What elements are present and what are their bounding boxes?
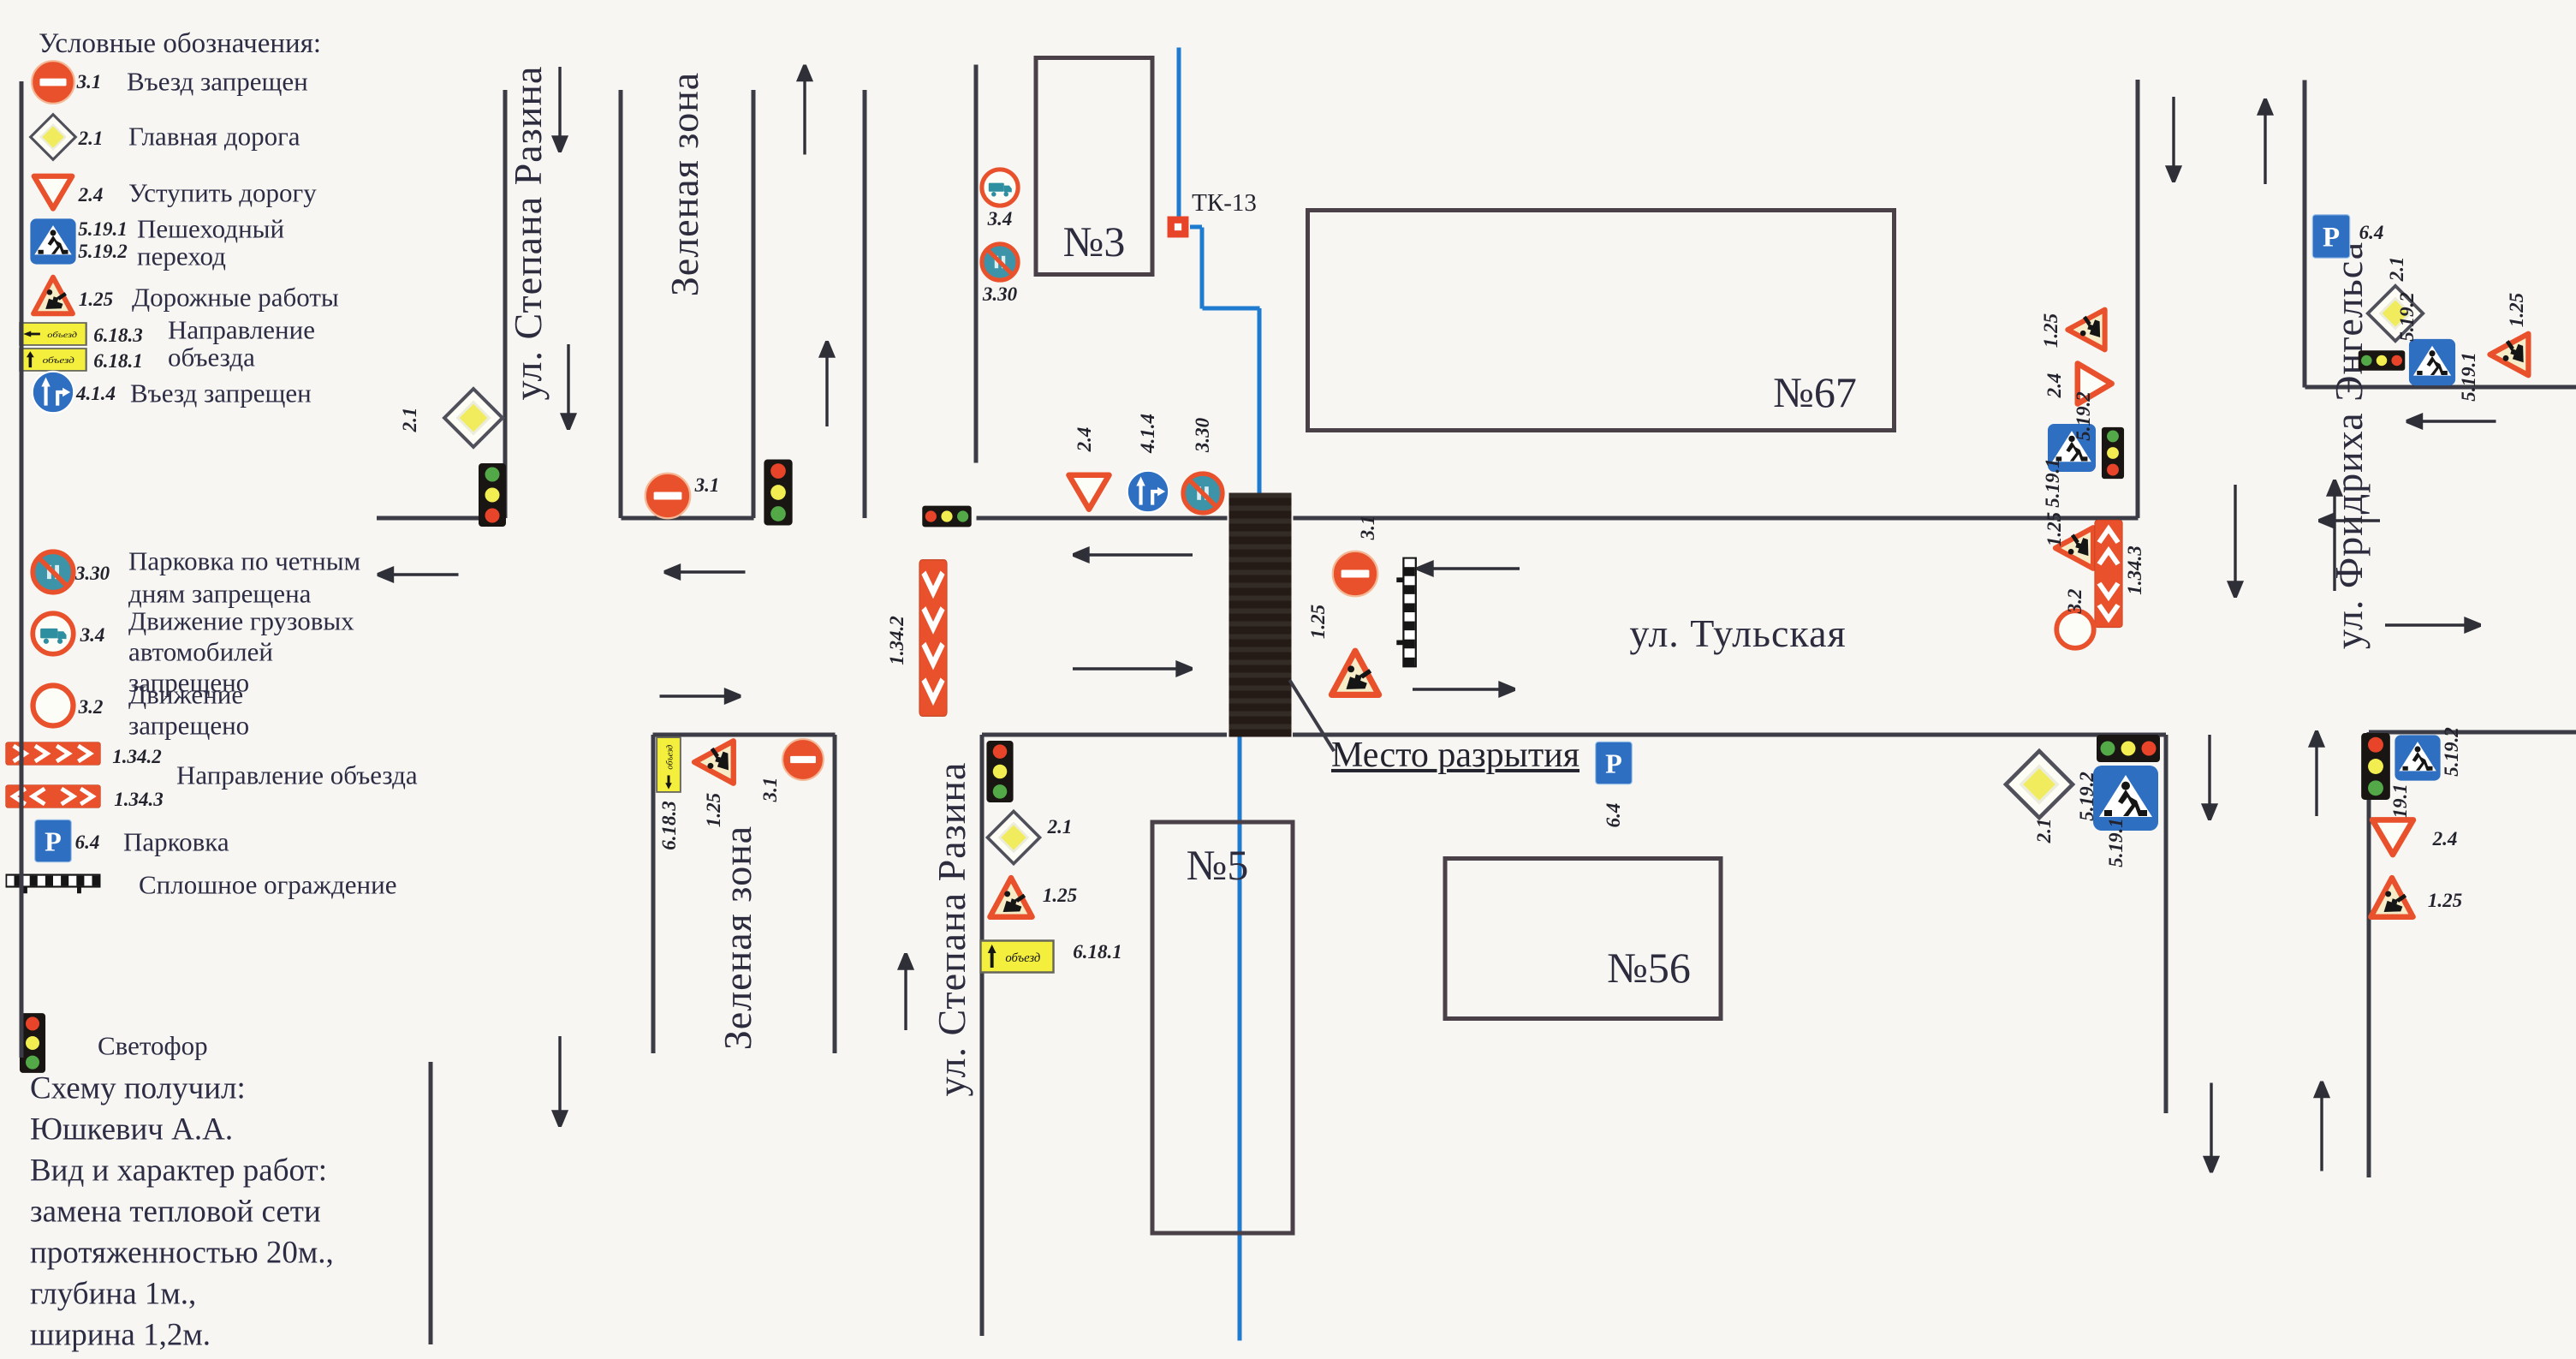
- note-line: ширина 1,2м.: [30, 1320, 211, 1353]
- legend-title: Условные обозначения:: [39, 29, 321, 59]
- sign-road_works-1.25: [2364, 873, 2421, 923]
- sign-road_works-1.25: [690, 735, 740, 790]
- sign-chev_both-1.34.3: [2094, 520, 2123, 629]
- arrow-left: [663, 562, 745, 582]
- sign-main_road-2.1: [439, 382, 508, 454]
- sign-main_road-2.1: [983, 805, 1044, 870]
- sign-detour_left-6.18.3: объезд: [656, 736, 681, 793]
- road-line: [619, 90, 623, 518]
- legend-item-label: Въезд запрещен: [127, 69, 308, 97]
- sign-main_road-2.1: [2000, 743, 2079, 826]
- sign-code: 3.2: [2065, 589, 2085, 614]
- legend-code: 3.4: [80, 625, 105, 646]
- sign-barrier_h: [1395, 557, 1419, 668]
- svg-text:объезд: объезд: [47, 331, 77, 339]
- arrow-down: [2163, 97, 2184, 182]
- arrow-down: [558, 344, 579, 430]
- sign-code: 2.4: [2044, 373, 2065, 398]
- legend-item-label: Парковка: [123, 829, 229, 857]
- arrow-up: [2311, 1081, 2332, 1171]
- street-label: ул. Степана Разина: [931, 762, 973, 1097]
- heating-pipe-line: [1200, 227, 1205, 308]
- sign-tl_h: [2094, 734, 2163, 763]
- street-label: ул. Тульская: [1629, 613, 1846, 654]
- svg-text:объезд: объезд: [1005, 951, 1040, 965]
- sign-yield-2.4: [2365, 812, 2420, 861]
- sign-code: 3.1: [760, 778, 781, 802]
- sign-yield-2.4: [1062, 468, 1115, 516]
- legend-icon-parking: P: [33, 818, 73, 864]
- legend-item-label: Движение: [128, 682, 243, 710]
- legend-icon-no_entry: [30, 59, 76, 105]
- legend-item-label: Парковка по четным: [128, 548, 360, 576]
- legend-item-label: Главная дорога: [128, 123, 300, 152]
- sign-tl_v: [476, 462, 509, 528]
- legend-code: 5.19.2: [78, 241, 128, 262]
- legend-item-label: объезда: [168, 344, 255, 373]
- legend-code: 2.4: [79, 185, 104, 206]
- legend-item-label: Дорожные работы: [132, 284, 339, 313]
- sign-tl_v: [2360, 732, 2391, 801]
- sign-tl_v: [985, 740, 1015, 803]
- sign-code: 5.19.1: [2106, 818, 2127, 867]
- sign-code: 3.1: [1358, 516, 1378, 540]
- sign-chev_right-1.34.2: [919, 559, 948, 718]
- arrow-right: [1413, 679, 1515, 700]
- sign-tl_v: [762, 459, 794, 527]
- sign-code: 3.30: [983, 284, 1017, 305]
- legend-item-label: Уступить дорогу: [128, 180, 317, 208]
- sign-code: 3.30: [1193, 418, 1213, 452]
- svg-text:P: P: [1605, 748, 1622, 779]
- sign-parking-6.4: P: [2311, 212, 2352, 261]
- sign-code: 1.25: [2428, 891, 2462, 911]
- sign-code: 4.1.4: [1138, 414, 1158, 453]
- sign-parking-6.4: P: [1594, 740, 1633, 787]
- street-label: ул. Степана Разина: [508, 66, 549, 401]
- road-line: [976, 516, 1227, 521]
- legend-icon-road_works: [27, 273, 79, 319]
- legend-code: 3.30: [75, 563, 110, 584]
- sign-code: 5.19.2: [2442, 727, 2462, 777]
- sign-code: 2.1: [2387, 257, 2407, 282]
- heating-pipe-line: [1177, 47, 1181, 216]
- sign-code: 2.4: [1074, 427, 1095, 452]
- sign-ped-5.19.2: [2408, 338, 2457, 387]
- heating-pipe-line: [1258, 308, 1262, 495]
- sign-no_traffic-3.2: [2054, 608, 2097, 651]
- legend-code: 6.18.1: [93, 351, 143, 372]
- legend-icon-no_park_even: [30, 549, 76, 595]
- road-line: [863, 90, 867, 518]
- legend-icon-straight_right: [31, 370, 75, 414]
- legend-item-label: переход: [137, 243, 226, 271]
- arrow-right: [1073, 659, 1193, 679]
- road-line: [429, 1062, 433, 1344]
- legend-item-label: Движение грузовых: [128, 608, 354, 636]
- note-line: глубина 1м.,: [30, 1279, 196, 1312]
- excavation-label: Место разрытия: [1331, 736, 1580, 774]
- sign-no_park_even-3.30: [979, 241, 1020, 283]
- road-line: [833, 735, 837, 1053]
- legend-icon-yield: [27, 169, 79, 215]
- sign-road_works-1.25: [983, 873, 1039, 923]
- sign-road_works-1.25: [1324, 647, 1388, 702]
- arrow-up: [2306, 730, 2327, 816]
- sign-code: 5.19.1: [2459, 352, 2479, 402]
- legend-item-label: запрещено: [128, 712, 249, 741]
- sign-straight_right-4.1.4: [1126, 469, 1170, 514]
- svg-text:P: P: [45, 826, 62, 857]
- arrow-right: [659, 686, 741, 706]
- arrow-left: [2318, 510, 2380, 531]
- sign-no_trucks-3.4: [979, 167, 1020, 208]
- road-line: [2136, 80, 2140, 518]
- sign-code: 1.25: [1043, 885, 1077, 906]
- sign-tl_v: [2099, 426, 2127, 480]
- legend-code: 2.1: [79, 128, 104, 149]
- tk-label: ТК-13: [1192, 190, 1257, 216]
- heating-pipe-line: [1202, 307, 1259, 311]
- excavation-site: [1229, 492, 1291, 736]
- legend-icon-no_trucks: [30, 611, 76, 657]
- sign-code: 1.25: [1308, 605, 1329, 639]
- legend-icon-ped: [29, 218, 77, 265]
- arrow-right: [2385, 615, 2481, 635]
- legend-item-label: автомобилей: [128, 639, 273, 667]
- building-label: №56: [1607, 945, 1691, 991]
- sign-code: 1.25: [704, 793, 724, 827]
- sign-road_works-1.25: [2064, 303, 2111, 356]
- sign-no_entry-3.1: [1331, 550, 1380, 599]
- sign-no_entry-3.1: [644, 472, 693, 521]
- sign-no_park_even-3.30: [1181, 471, 1225, 516]
- legend-item-label: дням запрещена: [128, 581, 311, 609]
- sign-code: 2.1: [400, 408, 420, 432]
- legend-code: 1.25: [79, 289, 113, 310]
- arrow-left: [1073, 545, 1193, 565]
- arrow-down: [2201, 1082, 2222, 1172]
- sign-code: 1.25: [2044, 512, 2065, 546]
- road-line: [982, 733, 1227, 737]
- legend-icon-detour_up: объезд: [19, 348, 87, 372]
- legend-code: 3.1: [77, 72, 102, 92]
- note-line: протяженностью 20м.,: [30, 1237, 334, 1271]
- road-line: [651, 735, 656, 1053]
- note-line: Юшкевич А.А.: [30, 1114, 233, 1147]
- sign-tl_h: [922, 504, 973, 528]
- building-label: №67: [1773, 370, 1857, 415]
- svg-text:P: P: [2323, 223, 2340, 253]
- sign-code: 6.4: [2359, 223, 2384, 243]
- sign-road_works-1.25: [2486, 325, 2535, 384]
- note-line: Схему получил:: [30, 1073, 246, 1106]
- sign-code: 5.19.1: [2043, 458, 2063, 508]
- sign-code: 5.19.2: [2077, 772, 2097, 821]
- sign-code: 6.18.3: [659, 801, 680, 850]
- arrow-down: [550, 1036, 570, 1127]
- legend-code: 1.34.3: [114, 790, 164, 810]
- sign-ped-5.19.2: [2393, 734, 2442, 782]
- legend-code: 4.1.4: [76, 384, 116, 404]
- legend-code: 6.18.3: [93, 325, 143, 346]
- sign-code: 1.34.3: [2125, 545, 2145, 595]
- sign-code: 3.1: [695, 475, 720, 496]
- sign-code: 2.1: [1048, 817, 1073, 837]
- svg-text:объезд: объезд: [665, 745, 675, 770]
- sign-code: 2.1: [2034, 819, 2055, 843]
- road-line: [1293, 516, 2138, 521]
- arrow-up: [895, 953, 916, 1030]
- legend-item-label: Направление: [168, 317, 315, 345]
- legend-item-label: Въезд запрещен: [130, 380, 312, 408]
- street-label: Зеленая зона: [664, 72, 705, 296]
- sign-code: 5.19.2: [2397, 292, 2418, 342]
- sign-code: 1.34.2: [887, 616, 907, 665]
- sign-code: 5.19.2: [2073, 391, 2094, 441]
- road-line: [752, 90, 756, 518]
- sign-code: 1.25: [2041, 313, 2061, 348]
- sign-connector: [1167, 216, 1190, 239]
- arrow-down: [2225, 485, 2246, 598]
- street-label: Зеленая зона: [717, 826, 759, 1050]
- arrow-left: [1417, 558, 1520, 579]
- arrow-up: [2255, 98, 2276, 184]
- legend-code: 1.34.2: [112, 747, 162, 767]
- svg-text:объезд: объезд: [43, 355, 74, 366]
- sign-detour_up-6.18.1: объезд: [979, 939, 1055, 974]
- legend-item-label: Пешеходный: [137, 216, 284, 244]
- legend-item-label: Направление объезда: [176, 762, 418, 790]
- legend-item-label: Светофор: [98, 1033, 208, 1061]
- road-line: [2303, 80, 2307, 387]
- sign-tl_h: [2358, 349, 2406, 373]
- sign-code: 2.4: [2433, 829, 2458, 849]
- sign-code: 6.18.1: [1073, 942, 1122, 963]
- building-label: №3: [1063, 219, 1126, 265]
- sign-no_entry-3.1: [781, 737, 825, 782]
- building-label: №5: [1187, 843, 1249, 888]
- arrow-up: [794, 64, 815, 154]
- building-outline-№56: [1443, 856, 1722, 1021]
- road-line: [974, 64, 979, 462]
- arrow-down: [550, 67, 570, 152]
- sign-code: 1.25: [2507, 293, 2527, 327]
- legend-icon-detour_left: объезд: [19, 322, 87, 346]
- arrow-up: [2324, 480, 2345, 591]
- note-line: замена тепловой сети: [30, 1196, 321, 1230]
- legend-code: 3.2: [79, 697, 104, 718]
- note-line: Вид и характер работ:: [30, 1155, 327, 1189]
- road-line: [2164, 735, 2168, 1113]
- road-line: [20, 81, 24, 1058]
- traffic-scheme-page: Условные обозначения: 3.1Въезд запрещен2…: [0, 0, 2576, 1359]
- arrow-left: [377, 564, 458, 585]
- arrow-left: [2406, 411, 2496, 432]
- legend-icon-main_road: [27, 109, 80, 165]
- arrow-down: [2199, 735, 2220, 820]
- sign-code: 6.4: [1603, 803, 1624, 828]
- arrow-up: [817, 341, 837, 426]
- sign-code: 3.4: [988, 209, 1013, 229]
- legend-icon-no_traffic: [30, 682, 76, 729]
- legend-code: 6.4: [75, 832, 100, 853]
- legend-code: 5.19.1: [78, 219, 128, 240]
- legend-item-label: Сплошное ограждение: [139, 872, 396, 900]
